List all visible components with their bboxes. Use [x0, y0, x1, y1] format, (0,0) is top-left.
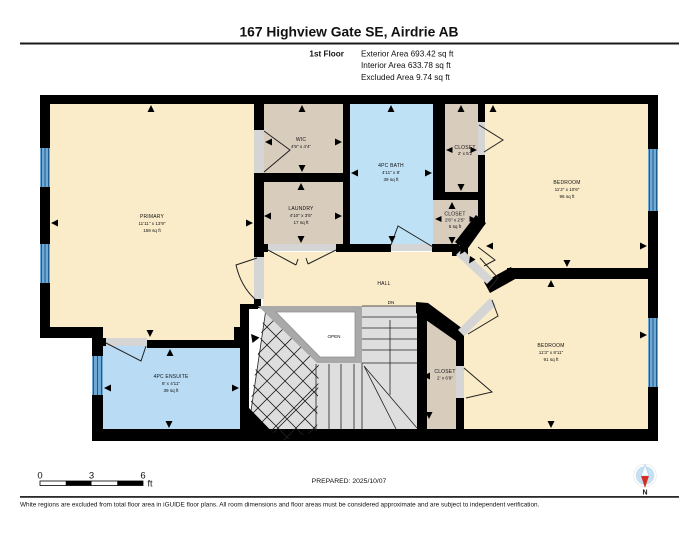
- svg-text:PRIMARY: PRIMARY: [140, 214, 165, 220]
- svg-text:WIC: WIC: [296, 137, 307, 143]
- svg-text:Exterior Area 693.42 sq ft: Exterior Area 693.42 sq ft: [361, 50, 454, 59]
- svg-text:PREPARED: 2025/10/07: PREPARED: 2025/10/07: [312, 478, 387, 485]
- svg-text:3: 3: [89, 471, 94, 482]
- svg-text:5 sq ft: 5 sq ft: [449, 224, 462, 229]
- svg-text:159 sq ft: 159 sq ft: [143, 228, 161, 233]
- svg-text:11'11" x 13'9": 11'11" x 13'9": [138, 221, 165, 226]
- svg-text:39 sq ft: 39 sq ft: [383, 177, 399, 182]
- svg-text:OPEN: OPEN: [327, 334, 340, 339]
- svg-text:Interior Area 633.78 sq ft: Interior Area 633.78 sq ft: [361, 61, 451, 70]
- svg-text:2' x 6'9": 2' x 6'9": [437, 376, 453, 381]
- svg-text:4'10" x 3'5": 4'10" x 3'5": [290, 213, 313, 218]
- svg-text:96 sq ft: 96 sq ft: [559, 194, 575, 199]
- svg-text:CLOSET: CLOSET: [434, 369, 455, 375]
- svg-text:1st Floor: 1st Floor: [309, 50, 344, 59]
- svg-text:DN: DN: [388, 300, 395, 305]
- svg-text:ft: ft: [148, 479, 154, 489]
- svg-text:2'6" x 2'5": 2'6" x 2'5": [445, 218, 465, 223]
- svg-text:11'2" x 10'6": 11'2" x 10'6": [555, 187, 580, 192]
- svg-text:4'9" x 4'4": 4'9" x 4'4": [291, 144, 311, 149]
- svg-text:4PC ENSUITE: 4PC ENSUITE: [154, 374, 189, 380]
- svg-text:2' x 5'2: 2' x 5'2: [458, 151, 473, 156]
- svg-text:91 sq ft: 91 sq ft: [543, 357, 559, 362]
- svg-text:0: 0: [37, 471, 42, 482]
- svg-text:BEDROOM: BEDROOM: [537, 343, 564, 349]
- svg-text:White regions are excluded fro: White regions are excluded from total fl…: [20, 502, 540, 509]
- svg-text:8' x 4'11": 8' x 4'11": [162, 381, 180, 386]
- svg-text:4'11" x 8': 4'11" x 8': [382, 170, 400, 175]
- svg-text:17 sq ft: 17 sq ft: [293, 220, 309, 225]
- svg-text:HALL: HALL: [377, 281, 390, 287]
- svg-text:39 sq ft: 39 sq ft: [163, 388, 179, 393]
- svg-text:6: 6: [140, 471, 145, 482]
- svg-text:4PC BATH: 4PC BATH: [378, 163, 404, 169]
- svg-text:Excluded Area 9.74 sq ft: Excluded Area 9.74 sq ft: [361, 73, 450, 82]
- svg-text:167 Highview Gate SE, Airdrie: 167 Highview Gate SE, Airdrie AB: [239, 25, 458, 40]
- svg-text:LAUNDRY: LAUNDRY: [288, 206, 314, 212]
- svg-text:N: N: [642, 490, 647, 497]
- svg-text:BEDROOM: BEDROOM: [553, 180, 580, 186]
- svg-text:11'3" x 8'11": 11'3" x 8'11": [539, 350, 564, 355]
